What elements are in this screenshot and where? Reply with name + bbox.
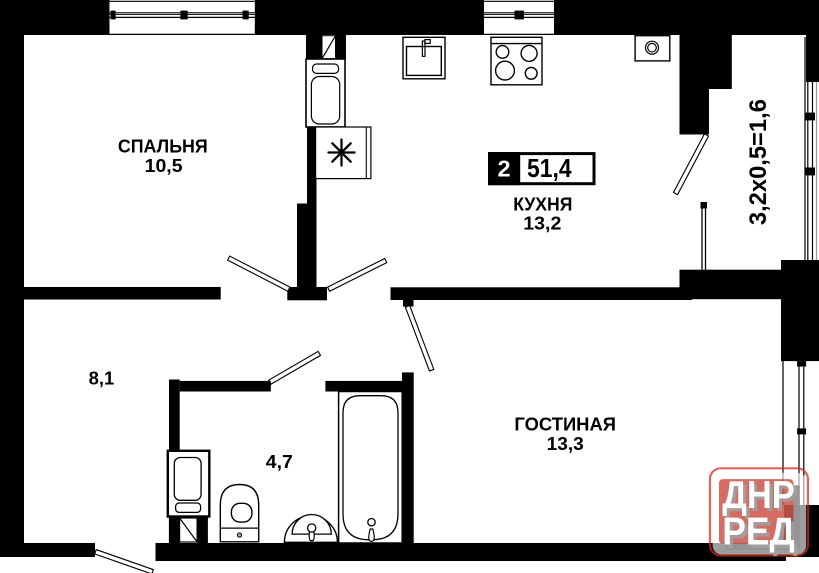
svg-text:3,2х0,5=1,6: 3,2х0,5=1,6	[746, 99, 772, 225]
svg-text:4,7: 4,7	[266, 451, 293, 472]
svg-text:СПАЛЬНЯ: СПАЛЬНЯ	[118, 136, 208, 157]
svg-text:13,2: 13,2	[523, 212, 561, 233]
svg-text:КУХНЯ: КУХНЯ	[513, 193, 572, 214]
svg-text:13,3: 13,3	[547, 433, 584, 454]
svg-text:8,1: 8,1	[89, 367, 115, 388]
svg-text:10,5: 10,5	[145, 155, 183, 176]
svg-text:РЕД: РЕД	[722, 511, 795, 554]
svg-text:ГОСТИНАЯ: ГОСТИНАЯ	[514, 413, 616, 434]
svg-text:2: 2	[497, 155, 510, 181]
svg-text:51,4: 51,4	[527, 153, 572, 183]
